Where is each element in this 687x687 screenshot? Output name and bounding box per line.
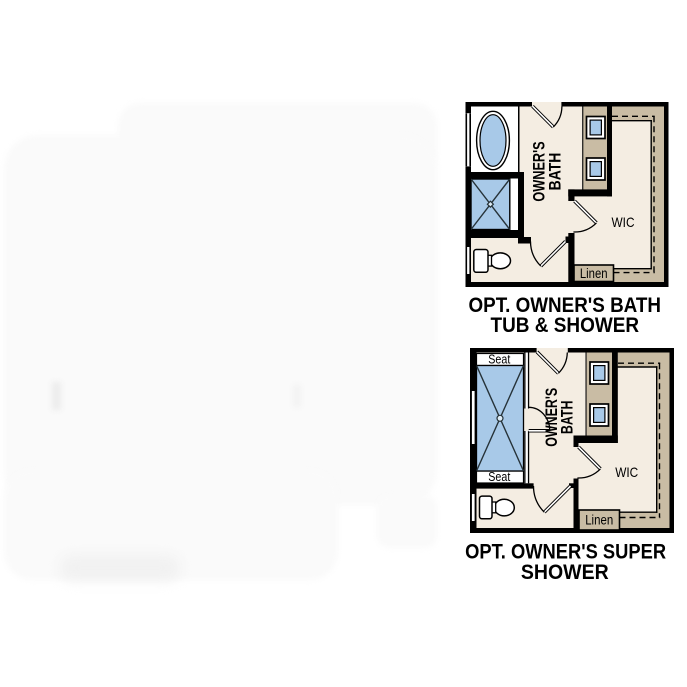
svg-text:SHOWER: SHOWER bbox=[521, 561, 609, 584]
svg-text:BATH: BATH bbox=[547, 153, 565, 191]
svg-text:Seat: Seat bbox=[488, 469, 510, 484]
svg-text:WIC: WIC bbox=[612, 214, 635, 230]
svg-text:BATH: BATH bbox=[559, 400, 577, 434]
svg-text:Seat: Seat bbox=[488, 352, 510, 367]
svg-text:TUB & SHOWER: TUB & SHOWER bbox=[491, 314, 640, 337]
svg-text:WIC: WIC bbox=[615, 464, 638, 480]
svg-text:Linen: Linen bbox=[585, 512, 613, 528]
svg-text:Linen: Linen bbox=[580, 265, 608, 281]
